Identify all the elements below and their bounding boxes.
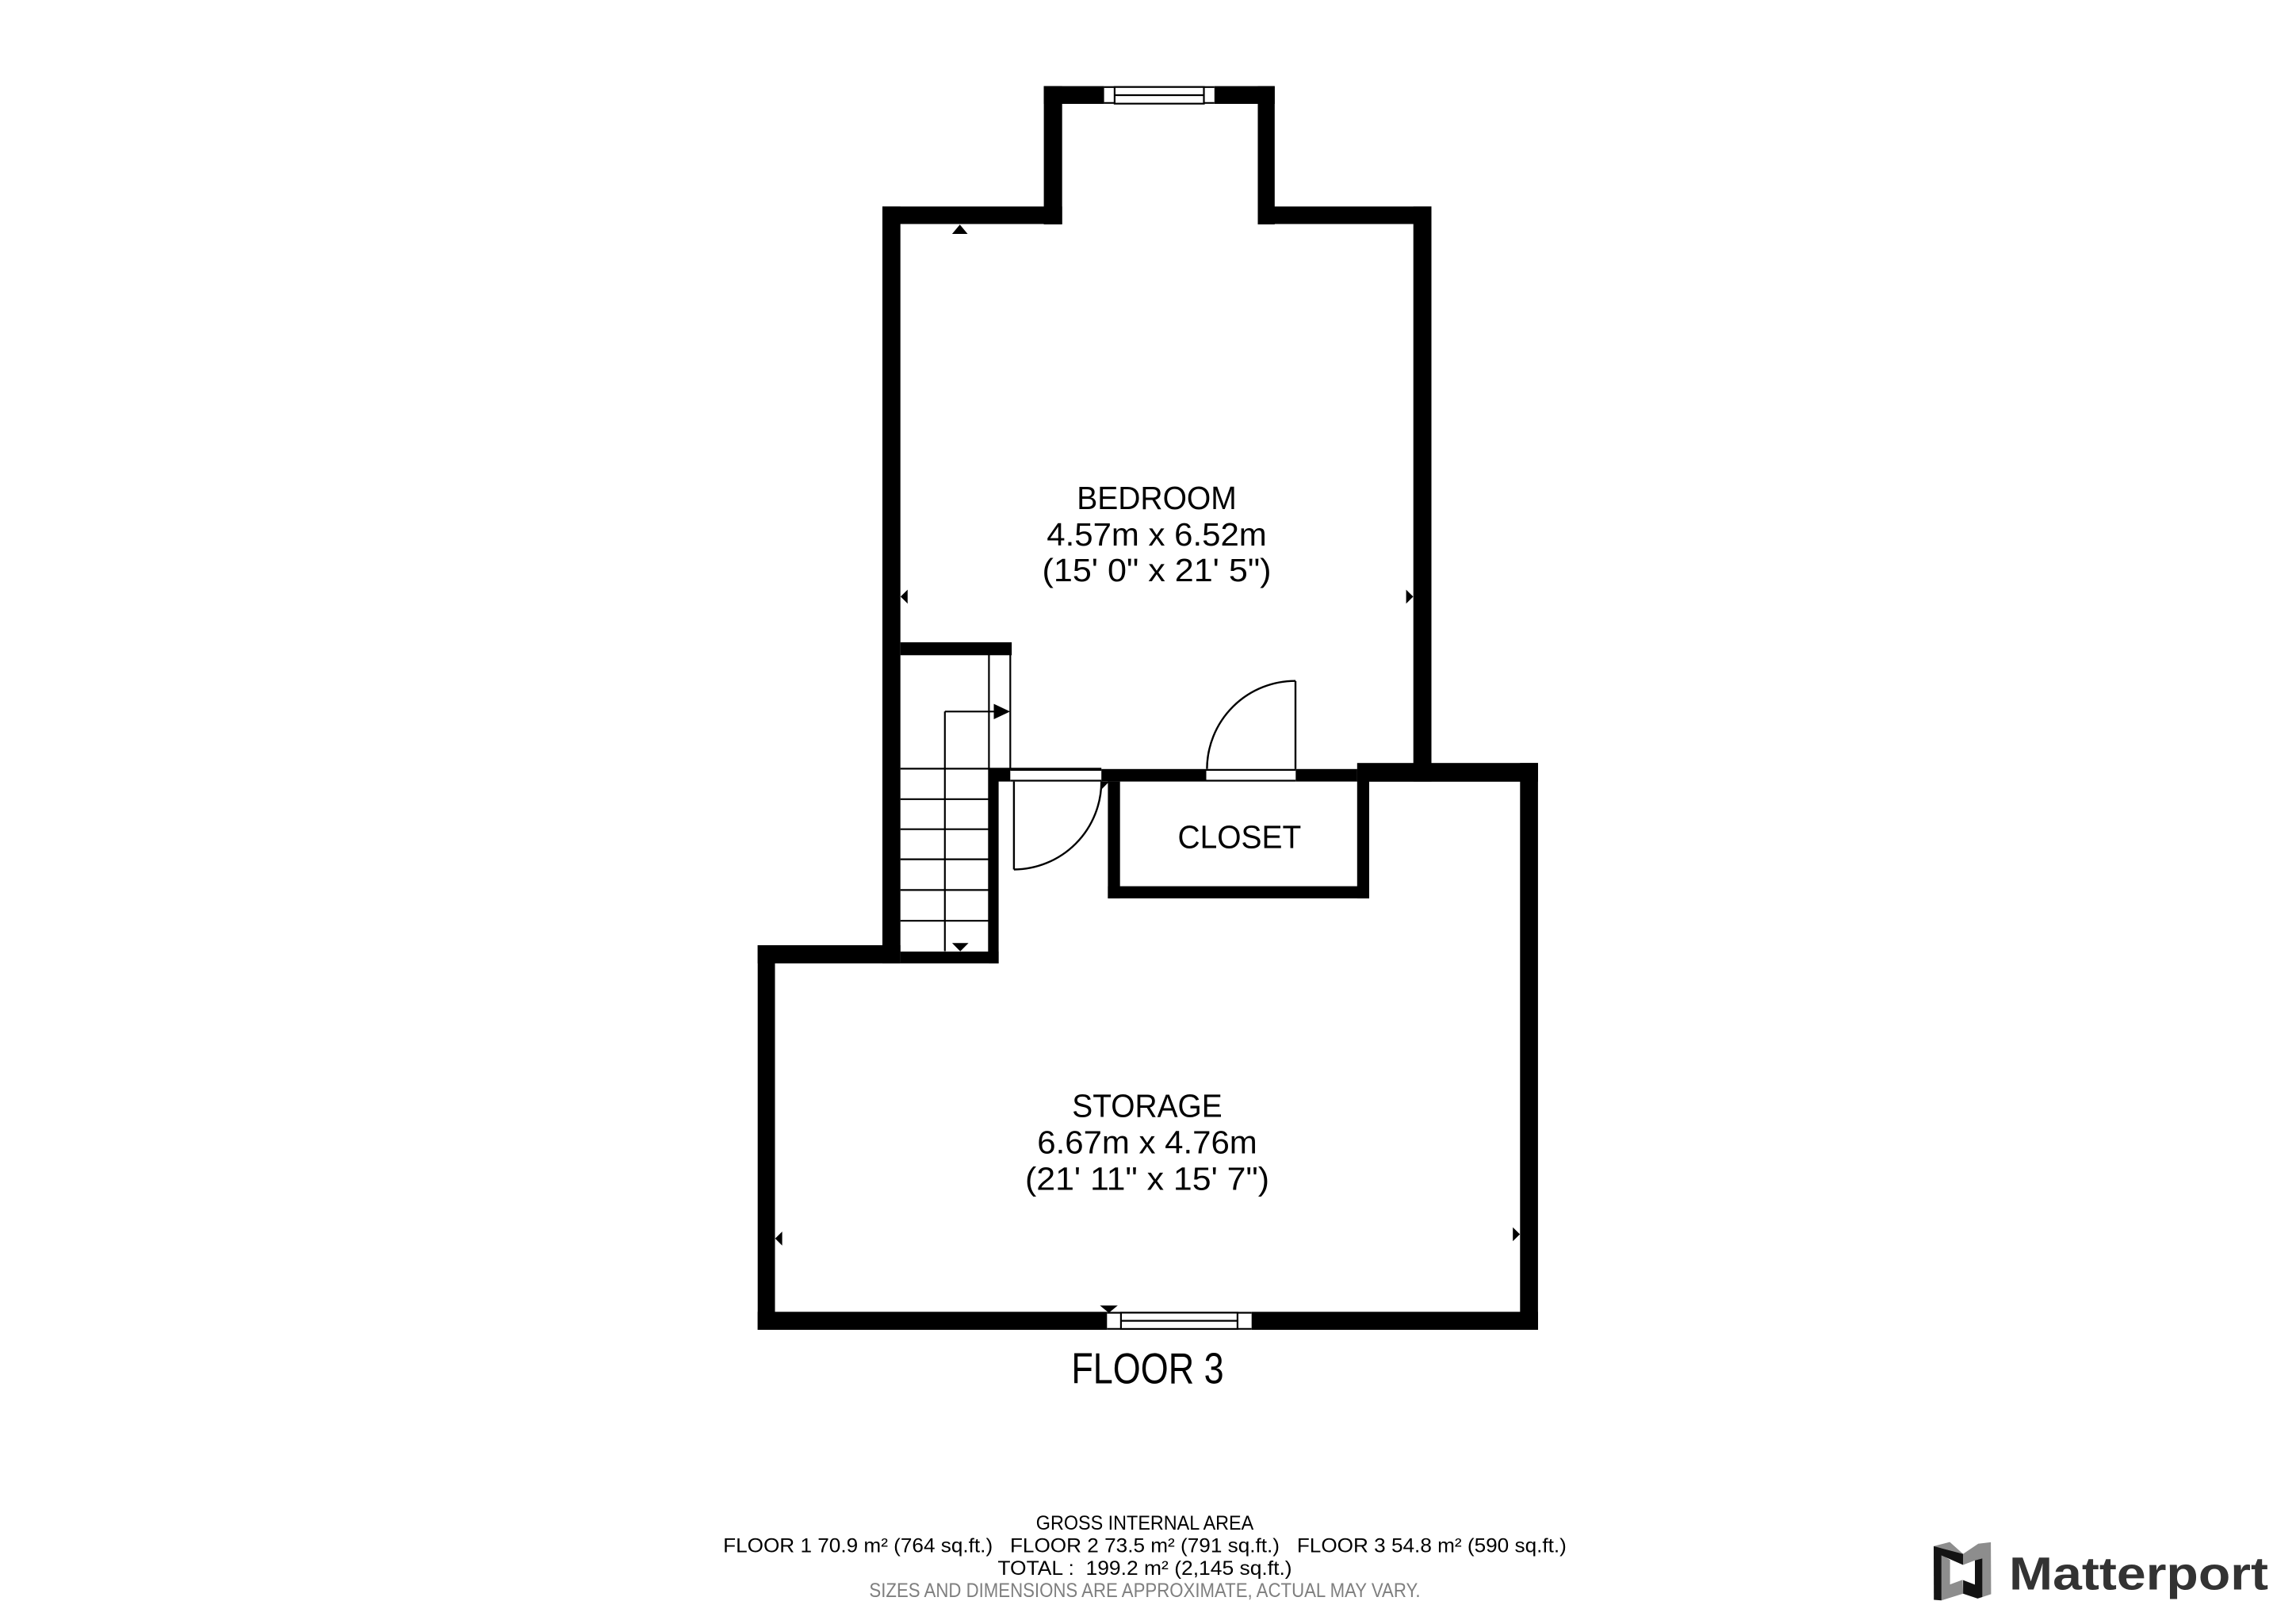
svg-text:TOTAL : 199.2 m² (2,145 sq.ft: TOTAL : 199.2 m² (2,145 sq.ft.) (997, 1557, 1291, 1580)
svg-text:GROSS INTERNAL AREA: GROSS INTERNAL AREA (1036, 1512, 1254, 1534)
svg-text:BEDROOM: BEDROOM (1077, 480, 1237, 516)
svg-text:(21' 11" x 15' 7"): (21' 11" x 15' 7") (1025, 1161, 1269, 1197)
svg-text:Matterport: Matterport (2009, 1549, 2268, 1600)
svg-text:FLOOR 1 70.9 m² (764 sq.ft.): FLOOR 1 70.9 m² (764 sq.ft.) FLOOR 2 73.… (723, 1535, 1567, 1557)
svg-text:FLOOR 3: FLOOR 3 (1071, 1343, 1223, 1392)
svg-text:CLOSET: CLOSET (1178, 819, 1302, 856)
svg-text:(15' 0" x 21' 5"): (15' 0" x 21' 5") (1043, 552, 1272, 588)
svg-text:SIZES AND DIMENSIONS ARE APPRO: SIZES AND DIMENSIONS ARE APPROXIMATE, AC… (869, 1580, 1420, 1602)
svg-text:STORAGE: STORAGE (1072, 1088, 1222, 1124)
svg-text:6.67m x 4.76m: 6.67m x 4.76m (1037, 1124, 1257, 1161)
svg-text:4.57m x 6.52m: 4.57m x 6.52m (1047, 516, 1267, 553)
